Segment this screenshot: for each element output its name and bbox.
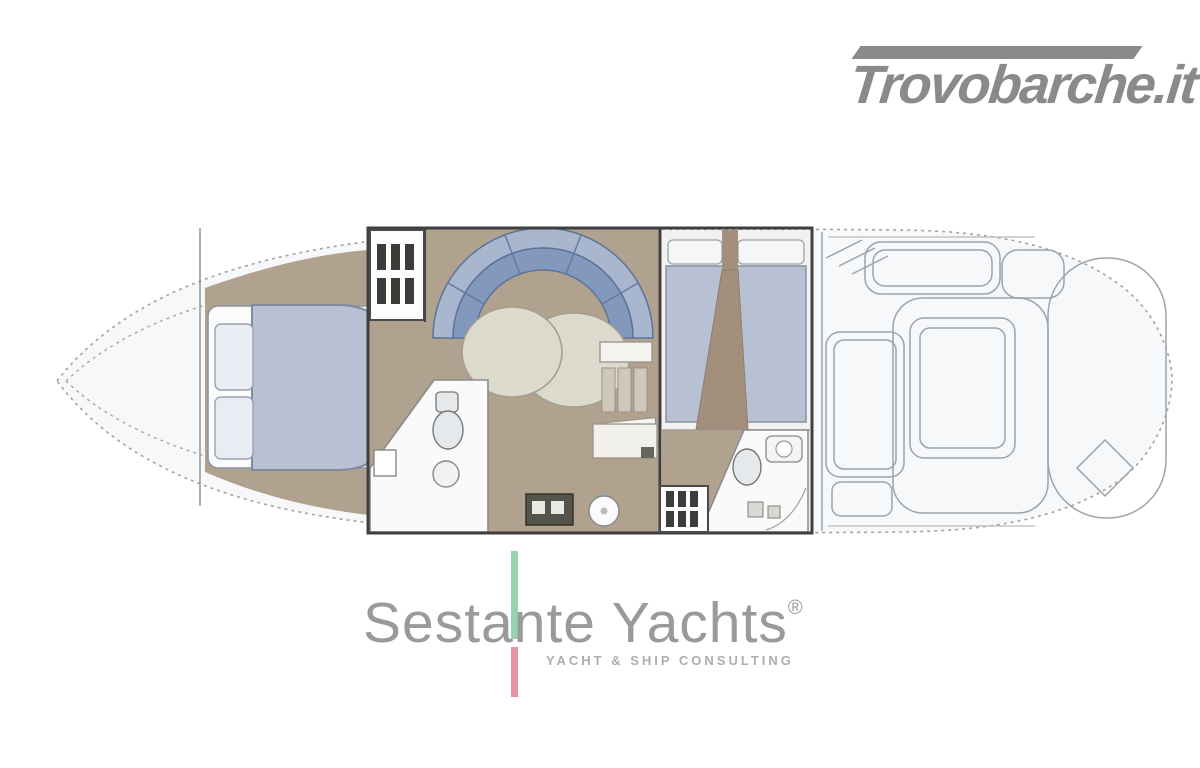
cabinet-top <box>600 342 652 362</box>
listing-image-page: { "header": { "logo_text": "Trovobarche.… <box>0 0 1200 768</box>
toilet <box>733 449 761 485</box>
berth-pillow <box>215 397 253 459</box>
companionway-steps <box>660 486 708 532</box>
cabinet-slat <box>618 368 631 412</box>
head-locker <box>748 502 763 517</box>
berth-pillow <box>668 240 722 264</box>
brand-tagline: YACHT & SHIP CONSULTING <box>546 653 794 668</box>
berth-pillow <box>215 324 253 390</box>
sink <box>776 441 792 457</box>
head-cabinet <box>436 392 458 412</box>
galley-sink-drain <box>601 508 608 515</box>
stove-burner <box>551 501 564 514</box>
forward-hatch-steps <box>370 230 424 320</box>
cabinet-slat <box>602 368 615 412</box>
brand-name: Sestante Yachts® <box>363 590 803 656</box>
head-locker <box>768 506 780 518</box>
cabinet-slat <box>634 368 647 412</box>
cabin-aisle-stem <box>722 230 738 274</box>
registered-trademark-symbol: ® <box>788 597 803 619</box>
sink <box>433 461 459 487</box>
brand-name-text: Sestante Yachts <box>363 591 788 655</box>
stove-burner <box>532 501 545 514</box>
head-locker <box>374 450 396 476</box>
berth-pillow <box>738 240 804 264</box>
galley-appliance <box>641 447 654 458</box>
sestante-yachts-logo: Sestante Yachts® YACHT & SHIP CONSULTING <box>0 540 1200 710</box>
toilet <box>433 411 463 449</box>
